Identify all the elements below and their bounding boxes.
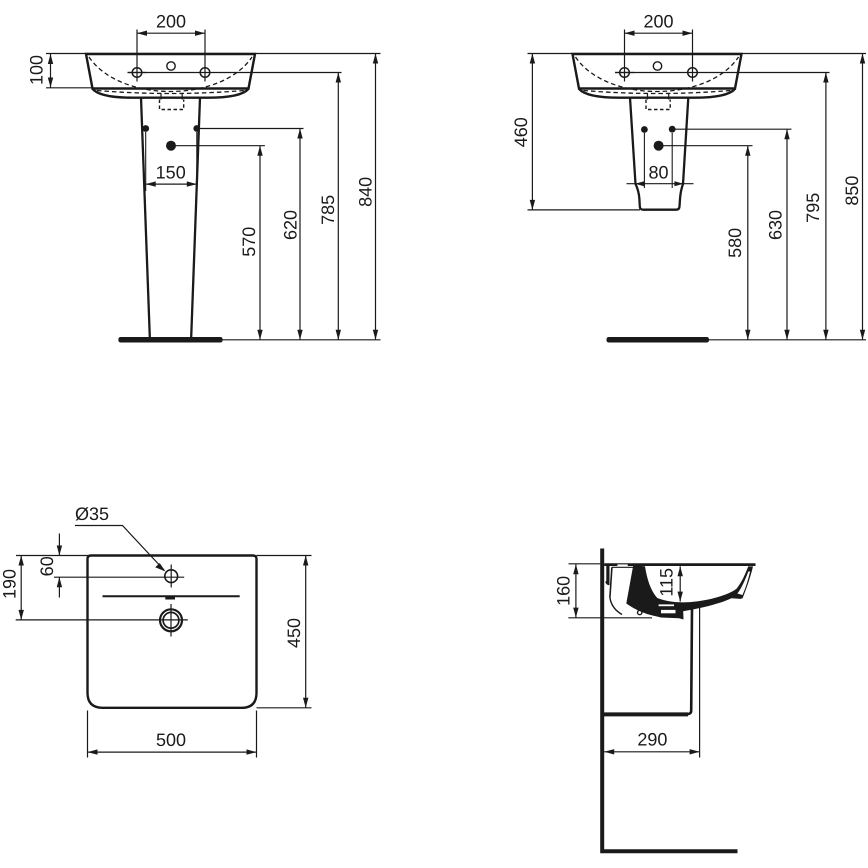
svg-text:500: 500 xyxy=(156,730,186,750)
svg-text:115: 115 xyxy=(656,568,676,597)
svg-text:580: 580 xyxy=(725,228,745,258)
svg-text:460: 460 xyxy=(511,117,531,147)
svg-text:60: 60 xyxy=(37,556,57,576)
svg-text:160: 160 xyxy=(554,576,574,606)
svg-text:190: 190 xyxy=(0,569,20,599)
svg-text:785: 785 xyxy=(318,195,338,225)
svg-text:290: 290 xyxy=(637,730,667,750)
svg-text:450: 450 xyxy=(284,618,304,648)
svg-text:570: 570 xyxy=(239,227,259,257)
svg-text:630: 630 xyxy=(766,210,786,240)
svg-text:840: 840 xyxy=(355,177,375,207)
svg-text:80: 80 xyxy=(648,163,668,183)
svg-text:850: 850 xyxy=(842,176,862,206)
svg-text:150: 150 xyxy=(156,163,186,183)
svg-text:620: 620 xyxy=(281,210,301,240)
svg-text:Ø35: Ø35 xyxy=(75,504,109,524)
svg-text:795: 795 xyxy=(803,193,823,223)
svg-text:200: 200 xyxy=(643,12,673,32)
svg-text:100: 100 xyxy=(27,55,47,85)
svg-text:200: 200 xyxy=(156,12,186,32)
